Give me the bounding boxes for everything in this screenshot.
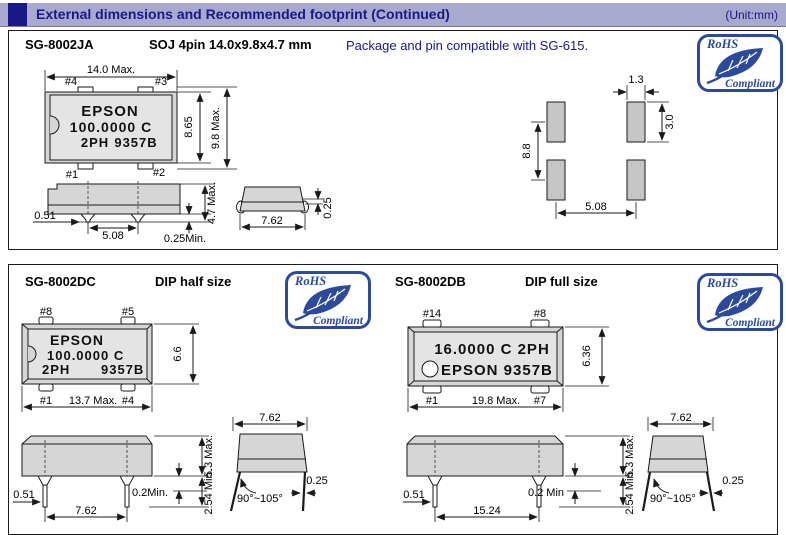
pin-label: #8 — [40, 306, 52, 318]
package-side — [48, 184, 180, 214]
dim-lead-angle: 90°~105° — [237, 493, 283, 505]
pin-label: #4 — [122, 395, 134, 407]
pin-pad — [121, 317, 135, 324]
dim-standoff: 0.25Min. — [164, 233, 206, 245]
angle-arc — [654, 479, 669, 493]
dim-width: 14.0 Max. — [87, 64, 135, 76]
dim-height: 6.6 — [172, 346, 184, 361]
title-accent-square — [8, 3, 27, 26]
lead-leg — [303, 472, 305, 511]
datasheet-page: External dimensions and Recommended foot… — [0, 0, 786, 535]
dim-lead-width: 0.51 — [13, 489, 34, 501]
pin-pad — [138, 163, 153, 169]
dim-standoff: 0.2 Min — [528, 487, 564, 499]
pin-pad — [531, 386, 549, 393]
pin-label: #3 — [155, 76, 167, 88]
pin-label: #1 — [426, 395, 438, 407]
dim-inner-height: 8.65 — [183, 116, 195, 137]
pin-pad — [423, 320, 441, 327]
pin-label: #2 — [153, 167, 165, 179]
dim-lead-width: 0.51 — [403, 489, 424, 501]
footprint-pad — [547, 160, 565, 200]
lead-shoulder — [532, 476, 546, 485]
db-side-view: 0.51 15.24 0.2 Min 5.3 Max. 2.54 Min. — [403, 435, 636, 522]
unit-note: (Unit:mm) — [725, 8, 778, 22]
marking-line2: EPSON 9357B — [441, 362, 553, 379]
ja-footprint: 1.3 3.0 8.8 5.08 — [521, 74, 676, 219]
package-side — [22, 436, 152, 476]
dim-width: 19.8 Max. — [472, 395, 520, 407]
pin-label: #7 — [534, 395, 546, 407]
pin-pad — [78, 87, 93, 92]
marking-line1: EPSON — [81, 103, 139, 120]
angle-arc — [241, 479, 256, 493]
dim-pad-height: 3.0 — [664, 114, 676, 129]
ja-end-view: 7.62 0.25 — [237, 187, 335, 230]
dim-height: 9.8 Max. — [210, 107, 222, 149]
dim-lead-pitch: 5.08 — [102, 230, 123, 242]
db-end-view: 7.62 0.25 90°~105° — [643, 412, 744, 511]
dim-lead-length: 2.54 Min. — [203, 469, 215, 514]
marking-line1: EPSON — [50, 332, 104, 348]
marking-line1: 16.0000 C 2PH — [434, 341, 550, 358]
lead-pin — [125, 485, 129, 507]
lead-pin — [433, 485, 437, 507]
dc-db-drawings: #8 #5 #1 #4 EPSON 100.0000 C 2PH 9357B — [9, 265, 775, 531]
panel-sg8002dc-db: SG-8002DC DIP half size SG-8002DB DIP fu… — [8, 264, 778, 535]
package-end — [648, 436, 708, 472]
marking-line3b: 9357B — [114, 135, 157, 150]
marking-line2: 100.0000 C — [47, 348, 124, 363]
marking-line3a: 2PH — [42, 362, 70, 377]
pin-label: #14 — [423, 308, 441, 320]
panel-sg8002ja: SG-8002JA SOJ 4pin 14.0x9.8x4.7 mm Packa… — [8, 30, 778, 250]
lead-shoulder — [38, 476, 52, 485]
dim-standoff: 0.2Min. — [132, 487, 168, 499]
footprint-pad — [547, 102, 565, 142]
pin-pad — [138, 87, 153, 92]
lead-leg — [707, 472, 714, 511]
package-end — [240, 187, 305, 211]
marking-line2: 100.0000 C — [70, 119, 152, 135]
dim-side-width: 7.62 — [670, 412, 691, 424]
dim-lid: 0.25 — [322, 197, 334, 218]
dim-side-width: 7.62 — [259, 412, 280, 424]
dim-side-width: 7.62 — [261, 215, 282, 227]
lead-shoulder — [120, 476, 134, 485]
ja-top-view: 14.0 Max. #4 #3 #1 #2 EPSON 100.0000 C 2… — [45, 64, 237, 181]
j-lead — [131, 214, 145, 222]
title-bar: External dimensions and Recommended foot… — [0, 3, 786, 27]
dim-lead-length: 2.54 Min. — [624, 469, 636, 514]
footprint-pad — [627, 102, 645, 142]
marking-line3b: 9357B — [101, 362, 144, 377]
dim-height: 6.36 — [581, 345, 593, 366]
footprint-pad — [627, 160, 645, 200]
page-title: External dimensions and Recommended foot… — [36, 6, 450, 22]
pin-label: #5 — [122, 306, 134, 318]
package-side — [407, 436, 563, 476]
package-end — [237, 434, 307, 472]
pin-label: #4 — [65, 76, 77, 88]
j-lead — [81, 214, 95, 222]
lead-shoulder — [428, 476, 442, 485]
orientation-circle — [422, 361, 438, 377]
dim-lead-thickness: 0.25 — [722, 475, 743, 487]
dc-top-view: #8 #5 #1 #4 EPSON 100.0000 C 2PH 9357B — [22, 306, 199, 412]
lead-leg — [643, 472, 650, 511]
dc-end-view: 7.62 0.25 90°~105° — [231, 412, 328, 511]
dc-side-view: 0.51 7.62 0.2Min. 5.3 Max. 2.54 Min. — [13, 435, 215, 522]
pin-pad — [39, 384, 53, 391]
dim-lead-pitch: 7.62 — [75, 505, 96, 517]
dim-pad-pitch: 5.08 — [585, 201, 606, 213]
dim-pad-width: 1.3 — [628, 74, 643, 86]
pin-pad — [531, 320, 549, 327]
ja-side-view: 0.51 5.08 0.25Min. 4.7 Max. — [33, 181, 218, 245]
dim-lead-pitch: 15.24 — [473, 505, 501, 517]
pin-label: #1 — [40, 395, 52, 407]
marking-line3a: 2PH — [81, 135, 109, 150]
pin-pad — [423, 386, 441, 393]
dim-width: 13.7 Max. — [69, 395, 117, 407]
pin-label: #8 — [534, 308, 546, 320]
dim-lead-width: 0.51 — [34, 210, 55, 222]
pin-pad — [121, 384, 135, 391]
db-top-view: #14 #8 #1 #7 16.0000 C 2PH EPSON 9357B 6… — [408, 308, 609, 412]
ja-drawings: 14.0 Max. #4 #3 #1 #2 EPSON 100.0000 C 2… — [9, 31, 775, 246]
pin-pad — [39, 317, 53, 324]
dim-lead-angle: 90°~105° — [650, 493, 696, 505]
lead-leg — [231, 472, 240, 511]
dim-row-pitch: 8.8 — [521, 143, 533, 158]
dim-lead-thickness: 0.25 — [306, 475, 327, 487]
dim-body-height: 4.7 Max. — [206, 182, 218, 224]
pin-pad — [78, 163, 93, 169]
lead-pin — [43, 485, 47, 507]
pin-label: #1 — [66, 169, 78, 181]
